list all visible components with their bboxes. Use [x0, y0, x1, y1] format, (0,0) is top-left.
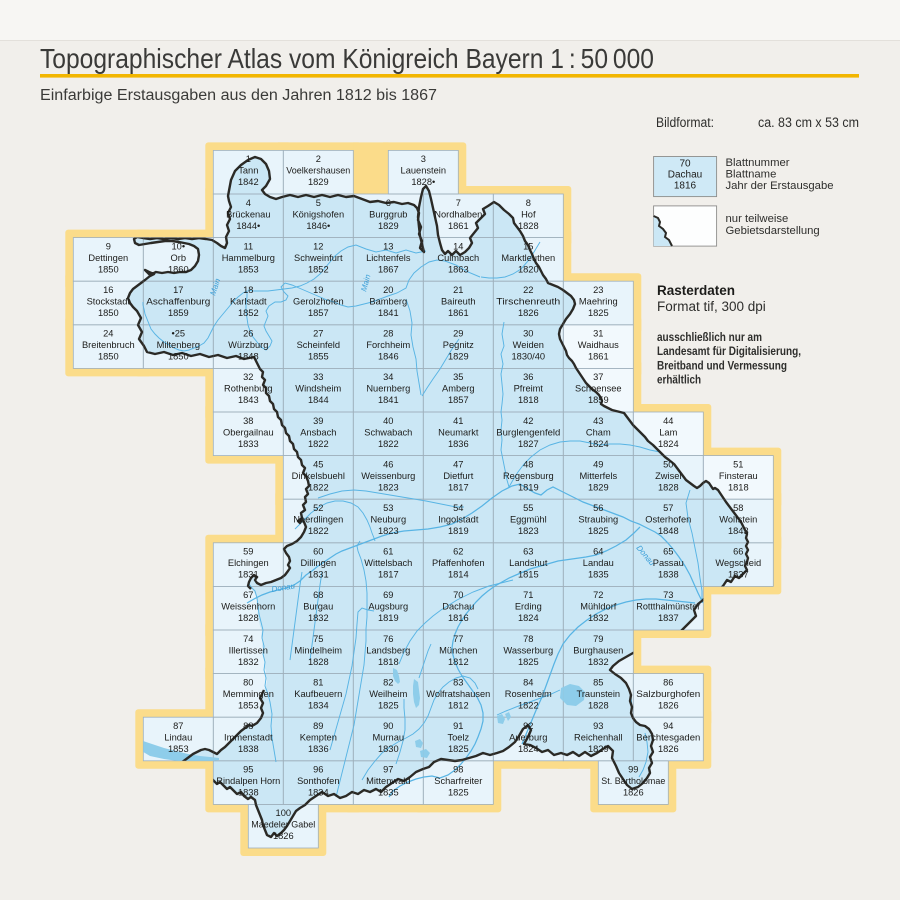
svg-text:68: 68 [313, 590, 323, 600]
svg-text:Cham: Cham [586, 427, 611, 437]
svg-text:Mitterfels: Mitterfels [579, 471, 617, 481]
svg-text:1860: 1860 [168, 264, 189, 274]
svg-text:1828: 1828 [588, 700, 609, 710]
svg-text:Aschaffenburg: Aschaffenburg [146, 297, 210, 307]
svg-text:69: 69 [383, 590, 393, 600]
svg-text:2: 2 [316, 154, 321, 164]
svg-text:78: 78 [523, 634, 533, 644]
svg-text:10•: 10• [171, 241, 185, 251]
svg-text:Pfreimt: Pfreimt [514, 384, 544, 394]
svg-text:Windsheim: Windsheim [295, 384, 341, 394]
svg-text:Mittenwald: Mittenwald [366, 776, 410, 786]
svg-text:41: 41 [453, 416, 463, 426]
svg-text:Schoensee: Schoensee [575, 384, 622, 394]
svg-text:13: 13 [383, 241, 393, 251]
svg-text:1825: 1825 [518, 657, 539, 667]
svg-text:14: 14 [453, 241, 463, 251]
svg-text:1826: 1826 [518, 308, 539, 318]
svg-text:Lam: Lam [659, 427, 677, 437]
svg-text:1850: 1850 [98, 264, 119, 274]
svg-text:100: 100 [276, 808, 292, 818]
svg-text:1828: 1828 [238, 613, 259, 623]
svg-text:1852: 1852 [238, 308, 259, 318]
svg-text:55: 55 [523, 503, 533, 513]
svg-text:1835: 1835 [588, 570, 609, 580]
svg-text:ca. 83 cm x 53 cm: ca. 83 cm x 53 cm [758, 115, 859, 130]
svg-text:Baireuth: Baireuth [441, 297, 476, 307]
svg-text:Königshofen: Königshofen [292, 209, 344, 219]
svg-text:1828: 1828 [518, 221, 539, 231]
svg-text:1822: 1822 [308, 526, 329, 536]
svg-text:1834: 1834 [308, 788, 329, 798]
svg-text:Nuernberg: Nuernberg [366, 384, 410, 394]
svg-text:97: 97 [383, 765, 393, 775]
svg-text:23: 23 [593, 285, 603, 295]
svg-text:Zwisel: Zwisel [655, 471, 681, 481]
svg-text:74: 74 [243, 634, 253, 644]
svg-text:1850: 1850 [98, 352, 119, 362]
svg-text:Dietfurt: Dietfurt [443, 471, 473, 481]
svg-text:47: 47 [453, 459, 463, 469]
svg-text:nur teilweise: nur teilweise [726, 213, 789, 225]
svg-text:Burglengenfeld: Burglengenfeld [496, 427, 560, 437]
svg-text:1846•: 1846• [306, 221, 330, 231]
svg-text:1857: 1857 [308, 308, 329, 318]
svg-text:Wolfratshausen: Wolfratshausen [426, 689, 490, 699]
svg-text:1825: 1825 [448, 788, 469, 798]
svg-text:81: 81 [313, 677, 323, 687]
svg-text:82: 82 [383, 677, 393, 687]
svg-text:46: 46 [383, 459, 393, 469]
svg-text:1832: 1832 [588, 657, 609, 667]
svg-text:1824: 1824 [658, 439, 679, 449]
svg-text:Forchheim: Forchheim [366, 340, 410, 350]
svg-text:Tirschenreuth: Tirschenreuth [496, 297, 560, 307]
svg-text:Weiden: Weiden [513, 340, 544, 350]
svg-text:1836: 1836 [448, 439, 469, 449]
svg-text:29: 29 [453, 329, 463, 339]
svg-text:57: 57 [663, 503, 673, 513]
svg-text:52: 52 [313, 503, 323, 513]
svg-text:75: 75 [313, 634, 323, 644]
svg-text:Weissenhorn: Weissenhorn [221, 602, 275, 612]
svg-text:Memmingen: Memmingen [223, 689, 274, 699]
svg-text:1838: 1838 [238, 788, 259, 798]
svg-text:67: 67 [243, 590, 253, 600]
svg-text:1832: 1832 [588, 613, 609, 623]
svg-text:Scharfreiter: Scharfreiter [434, 776, 482, 786]
svg-text:Maedeler Gabel: Maedeler Gabel [251, 820, 315, 830]
svg-text:Jahr der Erstausgabe: Jahr der Erstausgabe [726, 180, 834, 192]
svg-text:20: 20 [383, 285, 393, 295]
svg-text:92: 92 [523, 721, 533, 731]
svg-text:1842: 1842 [238, 177, 259, 187]
svg-text:32: 32 [243, 372, 253, 382]
svg-text:61: 61 [383, 547, 393, 557]
svg-text:1837: 1837 [658, 613, 679, 623]
svg-text:Blattname: Blattname [726, 169, 777, 181]
svg-text:95: 95 [243, 765, 253, 775]
svg-text:Schwabach: Schwabach [364, 427, 412, 437]
svg-text:Breitband und Vermessung: Breitband und Vermessung [657, 359, 787, 373]
svg-text:77: 77 [453, 634, 463, 644]
svg-text:Ingolstadt: Ingolstadt [438, 515, 479, 525]
svg-text:Burggrub: Burggrub [369, 209, 407, 219]
svg-text:Eggmühl: Eggmühl [510, 515, 547, 525]
svg-text:19: 19 [313, 285, 323, 295]
svg-text:1820: 1820 [518, 264, 539, 274]
svg-text:Hof: Hof [521, 209, 536, 219]
svg-text:1823: 1823 [378, 482, 399, 492]
svg-text:Straubing: Straubing [578, 515, 618, 525]
svg-text:24: 24 [103, 329, 113, 339]
svg-text:Würzburg: Würzburg [228, 340, 268, 350]
svg-text:1815: 1815 [518, 570, 539, 580]
svg-text:1852: 1852 [308, 264, 329, 274]
svg-text:Dinkelsbuehl: Dinkelsbuehl [292, 471, 345, 481]
svg-text:63: 63 [523, 547, 533, 557]
svg-text:36: 36 [523, 372, 533, 382]
svg-text:21: 21 [453, 285, 463, 295]
svg-text:1819: 1819 [448, 526, 469, 536]
svg-text:Murnau: Murnau [373, 733, 405, 743]
svg-text:87: 87 [173, 721, 183, 731]
svg-text:17: 17 [173, 285, 183, 295]
svg-text:1822: 1822 [518, 700, 539, 710]
svg-text:1841: 1841 [378, 395, 399, 405]
svg-text:1823: 1823 [518, 526, 539, 536]
svg-text:49: 49 [593, 459, 603, 469]
svg-text:Landesamt für Digitalisierung,: Landesamt für Digitalisierung, [657, 344, 801, 358]
svg-text:Voelkershausen: Voelkershausen [286, 166, 350, 176]
svg-text:6: 6 [386, 198, 391, 208]
svg-text:1822: 1822 [378, 439, 399, 449]
svg-text:Brückenau: Brückenau [226, 209, 270, 219]
svg-text:1829: 1829 [588, 482, 609, 492]
svg-text:1829: 1829 [378, 221, 399, 231]
svg-text:8: 8 [526, 198, 531, 208]
svg-text:1824: 1824 [518, 744, 539, 754]
svg-text:Rosenheim: Rosenheim [505, 689, 552, 699]
svg-text:86: 86 [663, 677, 673, 687]
svg-text:Pfaffenhofen: Pfaffenhofen [432, 558, 485, 568]
svg-text:40: 40 [383, 416, 393, 426]
svg-text:Osterhofen: Osterhofen [645, 515, 691, 525]
svg-text:91: 91 [453, 721, 463, 731]
svg-text:1825: 1825 [588, 526, 609, 536]
svg-text:Dachau: Dachau [668, 170, 702, 181]
svg-text:22: 22 [523, 285, 533, 295]
svg-text:Einfarbige Erstausgaben aus de: Einfarbige Erstausgaben aus den Jahren 1… [40, 87, 437, 104]
svg-text:1861: 1861 [448, 308, 469, 318]
svg-text:Kempten: Kempten [300, 733, 337, 743]
svg-text:58: 58 [733, 503, 743, 513]
svg-text:37: 37 [593, 372, 603, 382]
svg-text:99: 99 [628, 765, 638, 775]
svg-text:30: 30 [523, 329, 533, 339]
svg-text:1838: 1838 [238, 744, 259, 754]
svg-text:Orb: Orb [171, 253, 187, 263]
svg-text:1824: 1824 [518, 613, 539, 623]
svg-text:Sonthofen: Sonthofen [297, 776, 339, 786]
svg-text:1830/40: 1830/40 [511, 352, 545, 362]
svg-text:85: 85 [593, 677, 603, 687]
svg-text:Tann: Tann [238, 166, 258, 176]
svg-text:1829: 1829 [448, 352, 469, 362]
svg-text:1825: 1825 [448, 744, 469, 754]
svg-text:1818: 1818 [378, 657, 399, 667]
svg-text:43: 43 [593, 416, 603, 426]
svg-text:1848: 1848 [658, 526, 679, 536]
svg-text:88: 88 [243, 721, 253, 731]
svg-text:•25: •25 [171, 329, 185, 339]
svg-text:Traunstein: Traunstein [577, 689, 621, 699]
svg-text:1812: 1812 [448, 657, 469, 667]
svg-text:38: 38 [243, 416, 253, 426]
svg-text:44: 44 [663, 416, 673, 426]
svg-text:Toelz: Toelz [447, 733, 469, 743]
svg-text:Breitenbruch: Breitenbruch [82, 340, 135, 350]
svg-text:Schweinfurt: Schweinfurt [294, 253, 343, 263]
svg-text:1867: 1867 [378, 264, 399, 274]
svg-text:54: 54 [453, 503, 463, 513]
svg-text:erhältlich: erhältlich [657, 373, 701, 387]
svg-text:80: 80 [243, 677, 253, 687]
svg-text:1831: 1831 [308, 570, 329, 580]
svg-text:Elchingen: Elchingen [228, 558, 269, 568]
svg-text:70: 70 [453, 590, 463, 600]
svg-text:Mindelheim: Mindelheim [295, 645, 343, 655]
svg-text:Topographischer Atlas vom Köni: Topographischer Atlas vom Königreich Bay… [40, 43, 654, 74]
svg-text:Burghausen: Burghausen [573, 645, 623, 655]
svg-text:Nordhalben: Nordhalben [434, 209, 482, 219]
svg-text:Dillingen: Dillingen [300, 558, 336, 568]
svg-text:1824: 1824 [588, 439, 609, 449]
svg-text:Immenstadt: Immenstadt [224, 733, 273, 743]
svg-text:1844: 1844 [308, 395, 329, 405]
svg-text:1818: 1818 [728, 482, 749, 492]
svg-text:Obergailnau: Obergailnau [223, 427, 274, 437]
svg-text:84: 84 [523, 677, 533, 687]
svg-text:1: 1 [246, 154, 251, 164]
svg-text:Rothenburg: Rothenburg [224, 384, 273, 394]
svg-text:Weilheim: Weilheim [369, 689, 407, 699]
svg-text:34: 34 [383, 372, 393, 382]
svg-text:70: 70 [679, 159, 691, 170]
svg-text:4: 4 [246, 198, 251, 208]
svg-text:Gebietsdarstellung: Gebietsdarstellung [726, 225, 820, 237]
svg-text:83: 83 [453, 677, 463, 687]
svg-text:Rindalpen Horn: Rindalpen Horn [216, 776, 280, 786]
svg-text:98: 98 [453, 765, 463, 775]
svg-text:1823: 1823 [378, 526, 399, 536]
svg-text:31: 31 [593, 329, 603, 339]
svg-text:1814: 1814 [448, 570, 469, 580]
svg-text:Bamberg: Bamberg [369, 297, 407, 307]
svg-text:1825: 1825 [378, 700, 399, 710]
svg-text:5: 5 [316, 198, 321, 208]
svg-text:79: 79 [593, 634, 603, 644]
svg-text:Lindau: Lindau [164, 733, 192, 743]
svg-text:1859: 1859 [168, 308, 189, 318]
svg-text:28: 28 [383, 329, 393, 339]
svg-text:1817: 1817 [378, 570, 399, 580]
svg-text:Miltenberg: Miltenberg [157, 340, 200, 350]
svg-text:1826: 1826 [658, 744, 679, 754]
svg-text:1853: 1853 [168, 744, 189, 754]
svg-text:Gerolzhofen: Gerolzhofen [293, 297, 344, 307]
svg-text:1848: 1848 [238, 352, 259, 362]
svg-text:62: 62 [453, 547, 463, 557]
svg-text:Dettingen: Dettingen [88, 253, 128, 263]
svg-text:Maehring: Maehring [579, 297, 618, 307]
svg-text:Finsterau: Finsterau [719, 471, 758, 481]
svg-text:39: 39 [313, 416, 323, 426]
svg-text:1822: 1822 [308, 482, 329, 492]
svg-text:Marktleuthen: Marktleuthen [501, 253, 555, 263]
svg-text:48: 48 [523, 459, 533, 469]
svg-text:Lichtenfels: Lichtenfels [366, 253, 411, 263]
svg-text:35: 35 [453, 372, 463, 382]
svg-text:Dachau: Dachau [442, 602, 474, 612]
svg-text:90: 90 [383, 721, 393, 731]
svg-text:Bildformat:: Bildformat: [656, 115, 714, 130]
svg-text:7: 7 [456, 198, 461, 208]
svg-text:Neumarkt: Neumarkt [438, 427, 479, 437]
svg-text:1861: 1861 [588, 352, 609, 362]
svg-text:96: 96 [313, 765, 323, 775]
svg-text:33: 33 [313, 372, 323, 382]
svg-text:15: 15 [523, 241, 533, 251]
svg-text:Amberg: Amberg [442, 384, 475, 394]
svg-text:1850: 1850 [168, 352, 189, 362]
svg-text:11: 11 [243, 241, 253, 251]
svg-text:Ansbach: Ansbach [300, 427, 336, 437]
svg-text:1859: 1859 [588, 395, 609, 405]
svg-text:1834: 1834 [308, 700, 329, 710]
svg-text:1855: 1855 [308, 352, 329, 362]
svg-text:Erding: Erding [515, 602, 542, 612]
svg-text:53: 53 [383, 503, 393, 513]
svg-text:Reichenhall: Reichenhall [574, 733, 623, 743]
svg-text:1853: 1853 [238, 700, 259, 710]
svg-text:1838: 1838 [658, 570, 679, 580]
svg-text:Noerdlingen: Noerdlingen [293, 515, 343, 525]
svg-text:Culmbach: Culmbach [437, 253, 479, 263]
svg-text:Rottthalmünster: Rottthalmünster [636, 602, 700, 612]
svg-text:1843: 1843 [238, 395, 259, 405]
svg-text:50: 50 [663, 459, 673, 469]
svg-text:1831: 1831 [238, 570, 259, 580]
svg-text:Mühldorf: Mühldorf [580, 602, 617, 612]
svg-text:1822: 1822 [308, 439, 329, 449]
svg-text:1830: 1830 [378, 744, 399, 754]
svg-text:Wolfstein: Wolfstein [719, 515, 757, 525]
svg-text:1841: 1841 [378, 308, 399, 318]
svg-text:18: 18 [243, 285, 253, 295]
svg-text:16: 16 [103, 285, 113, 295]
svg-text:Blattnummer: Blattnummer [726, 157, 790, 169]
svg-text:3: 3 [421, 154, 426, 164]
svg-text:Salzburghofen: Salzburghofen [636, 689, 700, 699]
svg-text:1833: 1833 [238, 439, 259, 449]
svg-text:Illertissen: Illertissen [229, 645, 268, 655]
svg-text:73: 73 [663, 590, 673, 600]
svg-text:Passau: Passau [653, 558, 684, 568]
svg-text:1846: 1846 [378, 352, 399, 362]
svg-text:1819: 1819 [378, 613, 399, 623]
svg-text:1828: 1828 [308, 657, 329, 667]
svg-text:1832: 1832 [308, 613, 329, 623]
svg-text:1863: 1863 [448, 264, 469, 274]
svg-text:42: 42 [523, 416, 533, 426]
svg-text:Wittelsbach: Wittelsbach [364, 558, 412, 568]
svg-text:59: 59 [243, 547, 253, 557]
svg-text:1819: 1819 [518, 482, 539, 492]
svg-text:Landshut: Landshut [509, 558, 548, 568]
svg-text:89: 89 [313, 721, 323, 731]
svg-text:1829: 1829 [588, 744, 609, 754]
svg-text:Wegscheid: Wegscheid [715, 558, 761, 568]
svg-text:Rasterdaten: Rasterdaten [657, 283, 735, 298]
svg-text:27: 27 [313, 329, 323, 339]
svg-text:1816: 1816 [674, 181, 697, 192]
svg-text:1828•: 1828• [411, 177, 435, 187]
svg-text:Burgau: Burgau [303, 602, 333, 612]
svg-text:Lauenstein: Lauenstein [401, 166, 447, 176]
svg-text:1826: 1826 [658, 700, 679, 710]
svg-text:26: 26 [243, 329, 253, 339]
svg-text:1828: 1828 [658, 482, 679, 492]
svg-text:60: 60 [313, 547, 323, 557]
svg-text:94: 94 [663, 721, 673, 731]
svg-text:Wasserburg: Wasserburg [503, 645, 553, 655]
svg-text:Berchtesgaden: Berchtesgaden [636, 733, 700, 743]
svg-text:1861: 1861 [448, 221, 469, 231]
svg-text:1837: 1837 [728, 570, 749, 580]
svg-text:Karlstadt: Karlstadt [230, 297, 267, 307]
svg-text:1812: 1812 [448, 700, 469, 710]
svg-text:Augsburg: Augsburg [368, 602, 408, 612]
svg-text:Auerburg: Auerburg [509, 733, 547, 743]
svg-text:1835: 1835 [378, 788, 399, 798]
svg-text:1843: 1843 [728, 526, 749, 536]
svg-text:1853: 1853 [238, 264, 259, 274]
svg-text:1844•: 1844• [236, 221, 260, 231]
svg-text:1818: 1818 [518, 395, 539, 405]
svg-text:Kaufbeuern: Kaufbeuern [294, 689, 342, 699]
svg-text:1850: 1850 [98, 308, 119, 318]
svg-text:45: 45 [313, 459, 323, 469]
svg-text:1826: 1826 [623, 788, 644, 798]
svg-text:1817: 1817 [448, 482, 469, 492]
svg-text:65: 65 [663, 547, 673, 557]
svg-text:Waidhaus: Waidhaus [578, 340, 619, 350]
svg-text:76: 76 [383, 634, 393, 644]
svg-text:72: 72 [593, 590, 603, 600]
svg-text:1827: 1827 [518, 439, 539, 449]
svg-text:Format tif, 300 dpi: Format tif, 300 dpi [657, 299, 766, 314]
svg-text:Hammelburg: Hammelburg [222, 253, 275, 263]
svg-text:51: 51 [733, 459, 743, 469]
svg-text:Landsberg: Landsberg [366, 645, 410, 655]
svg-text:1857: 1857 [448, 395, 469, 405]
svg-text:9: 9 [106, 241, 111, 251]
svg-text:64: 64 [593, 547, 603, 557]
svg-text:Scheinfeld: Scheinfeld [297, 340, 340, 350]
svg-text:1816: 1816 [448, 613, 469, 623]
svg-text:12: 12 [313, 241, 323, 251]
